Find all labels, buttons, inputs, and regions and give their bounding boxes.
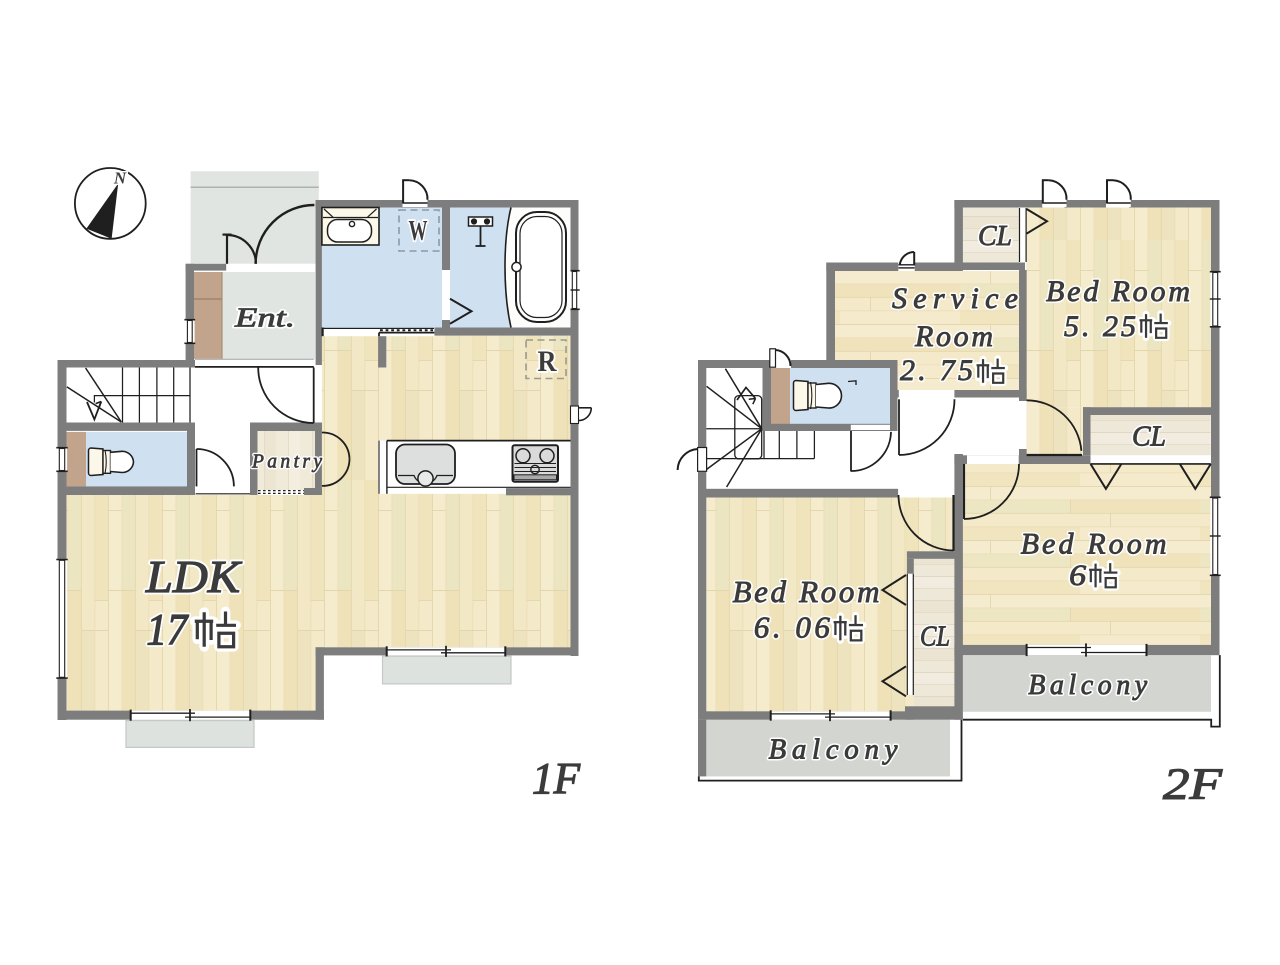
svg-text:CL: CL xyxy=(1132,422,1166,453)
svg-text:1F: 1F xyxy=(532,754,581,803)
svg-text:CL: CL xyxy=(978,221,1012,252)
svg-text:Room: Room xyxy=(914,320,993,353)
svg-text:N: N xyxy=(113,169,127,188)
svg-text:6: 6 xyxy=(1069,559,1086,592)
svg-text:Ent.: Ent. xyxy=(234,303,295,333)
svg-text:Bed Room: Bed Room xyxy=(1046,275,1190,308)
svg-text:CL: CL xyxy=(920,622,950,653)
svg-text:17: 17 xyxy=(146,605,189,654)
svg-text:LDK: LDK xyxy=(145,551,242,602)
svg-text:R: R xyxy=(538,345,557,378)
svg-text:2F: 2F xyxy=(1163,760,1223,809)
svg-text:Bed Room: Bed Room xyxy=(733,574,880,609)
svg-text:Bed Room: Bed Room xyxy=(1021,528,1167,561)
svg-text:W: W xyxy=(409,216,428,247)
